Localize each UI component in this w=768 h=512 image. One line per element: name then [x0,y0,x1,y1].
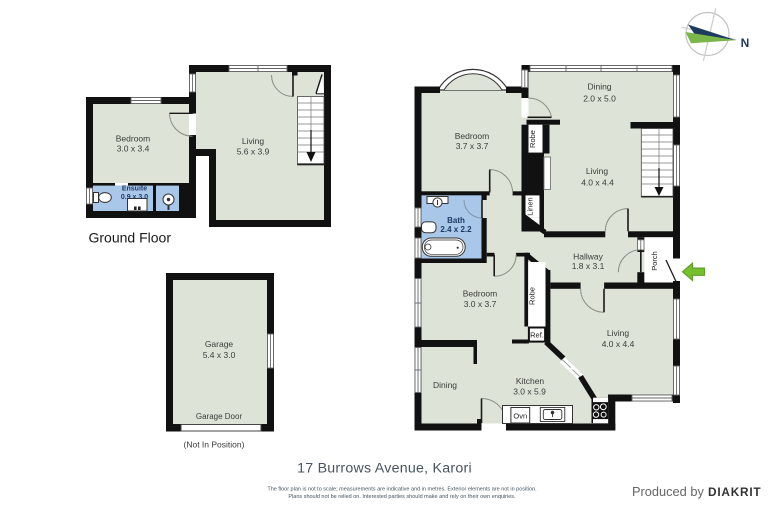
svg-text:The floor plan is not to scale: The floor plan is not to scale; measurem… [267,486,537,492]
svg-text:Bedroom: Bedroom [455,131,490,141]
svg-text:2.4 x 2.2: 2.4 x 2.2 [440,225,472,234]
svg-text:5.6 x 3.9: 5.6 x 3.9 [237,147,270,157]
svg-text:3.0 x 5.9: 3.0 x 5.9 [513,387,546,397]
svg-text:4.0 x 4.4: 4.0 x 4.4 [581,178,614,188]
svg-text:Bedroom: Bedroom [463,289,498,299]
svg-text:17 Burrows Avenue, Karori: 17 Burrows Avenue, Karori [297,461,472,477]
svg-text:Garage Door: Garage Door [196,412,243,421]
svg-text:0.9 x 3.0: 0.9 x 3.0 [121,194,148,201]
svg-text:3.0 x 3.7: 3.0 x 3.7 [464,299,497,309]
svg-text:3.0 x 3.4: 3.0 x 3.4 [117,144,150,154]
svg-text:Produced by: Produced by [632,484,704,499]
svg-text:Porch: Porch [650,251,659,271]
svg-text:2.0 x 5.0: 2.0 x 5.0 [583,94,616,104]
svg-text:Plans should not be relied on.: Plans should not be relied on. Intereste… [288,494,516,500]
svg-text:(Not In Position): (Not In Position) [184,440,245,450]
svg-text:N: N [741,36,750,50]
svg-text:Ground Floor: Ground Floor [89,230,172,246]
svg-text:Bath: Bath [447,216,465,225]
svg-text:Linen: Linen [526,197,535,215]
svg-text:Living: Living [607,328,629,338]
svg-text:Dining: Dining [433,380,457,390]
svg-text:Hallway: Hallway [573,252,604,262]
svg-text:Kitchen: Kitchen [516,376,545,386]
svg-text:Ensuite: Ensuite [122,186,147,193]
svg-text:Ovn: Ovn [513,411,527,420]
svg-text:Living: Living [242,136,264,146]
svg-text:1.8 x 3.1: 1.8 x 3.1 [572,261,605,271]
svg-text:Ref.: Ref. [530,331,544,340]
svg-text:Garage: Garage [205,339,234,349]
svg-text:Living: Living [586,166,608,176]
svg-text:Robe: Robe [528,287,537,305]
svg-text:3.7 x 3.7: 3.7 x 3.7 [456,141,489,151]
svg-text:4.0 x 4.4: 4.0 x 4.4 [602,339,635,349]
svg-text:Dining: Dining [587,82,611,92]
svg-text:5.4 x 3.0: 5.4 x 3.0 [203,350,236,360]
svg-text:DIAKRIT: DIAKRIT [708,485,761,499]
svg-text:Bedroom: Bedroom [116,134,151,144]
svg-text:Robe: Robe [528,130,537,148]
